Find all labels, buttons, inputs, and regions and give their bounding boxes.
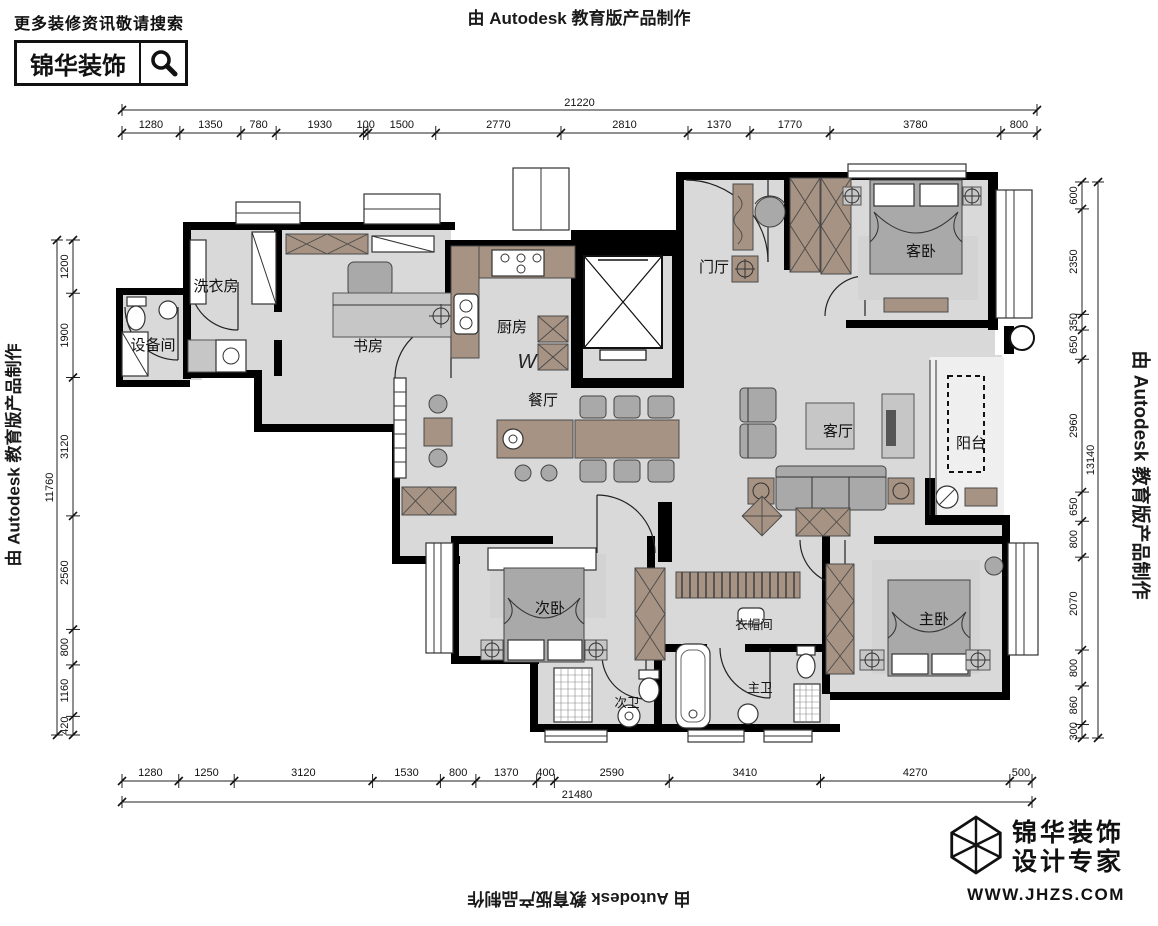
room-label-second-bath: 次卫 (614, 696, 639, 710)
svg-text:650: 650 (1068, 335, 1080, 353)
svg-text:3120: 3120 (59, 434, 71, 458)
room-label-balcony: 阳台 (956, 435, 986, 452)
room-label-study: 书房 (353, 338, 383, 355)
svg-text:2070: 2070 (1068, 591, 1080, 615)
svg-text:21220: 21220 (564, 97, 595, 109)
svg-text:350: 350 (1068, 313, 1080, 331)
svg-text:1250: 1250 (194, 767, 218, 779)
svg-text:1160: 1160 (59, 679, 71, 703)
room-label-kitchen: 厨房 (497, 319, 527, 336)
room-label-master-bedroom: 主卧 (919, 611, 949, 628)
svg-text:300: 300 (1068, 722, 1080, 740)
svg-text:1900: 1900 (59, 323, 71, 347)
svg-text:2560: 2560 (59, 560, 71, 584)
svg-text:1200: 1200 (59, 254, 71, 278)
svg-text:1350: 1350 (198, 119, 222, 131)
svg-text:2810: 2810 (612, 119, 636, 131)
svg-text:400: 400 (536, 767, 554, 779)
floor-plan-drawing: 洗衣房 设备间 书房 厨房 餐厅 门厅 客卧 客厅 阳台 次卧 衣帽间 主卧 次… (0, 0, 1158, 926)
svg-text:2590: 2590 (600, 767, 624, 779)
svg-text:800: 800 (449, 767, 467, 779)
room-label-dining: 餐厅 (528, 392, 558, 409)
svg-text:13140: 13140 (1085, 445, 1097, 476)
svg-text:3410: 3410 (733, 767, 757, 779)
svg-text:650: 650 (1068, 497, 1080, 515)
svg-text:11760: 11760 (44, 473, 56, 503)
svg-text:1530: 1530 (394, 767, 418, 779)
floor-plan-page: 由 Autodesk 教育版产品制作 由 Autodesk 教育版产品制作 由 … (0, 0, 1158, 926)
room-label-equipment: 设备间 (130, 337, 175, 354)
svg-text:500: 500 (1012, 767, 1030, 779)
svg-text:3780: 3780 (903, 119, 927, 131)
svg-text:800: 800 (1068, 659, 1080, 677)
svg-text:21480: 21480 (562, 789, 593, 801)
room-label-guest-bedroom: 客卧 (906, 243, 936, 260)
room-label-foyer: 门厅 (699, 259, 729, 276)
svg-text:2960: 2960 (1068, 413, 1080, 437)
room-label-cloakroom: 衣帽间 (735, 617, 773, 632)
svg-text:800: 800 (59, 638, 71, 656)
svg-text:780: 780 (249, 119, 267, 131)
svg-text:4270: 4270 (903, 767, 927, 779)
svg-text:1770: 1770 (778, 119, 802, 131)
svg-text:420: 420 (59, 717, 71, 735)
svg-text:1280: 1280 (138, 767, 162, 779)
svg-text:860: 860 (1068, 696, 1080, 714)
svg-text:1280: 1280 (139, 119, 163, 131)
svg-text:800: 800 (1068, 530, 1080, 548)
room-label-laundry: 洗衣房 (193, 278, 238, 295)
svg-text:2770: 2770 (486, 119, 510, 131)
svg-text:1500: 1500 (390, 119, 414, 131)
room-label-living: 客厅 (823, 423, 853, 440)
svg-text:100: 100 (356, 119, 374, 131)
svg-text:600: 600 (1068, 186, 1080, 204)
svg-text:1370: 1370 (707, 119, 731, 131)
svg-text:1370: 1370 (494, 767, 518, 779)
room-label-master-bath: 主卫 (747, 681, 772, 695)
washer-symbol: W (518, 351, 539, 373)
svg-text:1930: 1930 (308, 119, 332, 131)
room-label-second-bedroom: 次卧 (535, 600, 565, 617)
svg-text:800: 800 (1010, 119, 1028, 131)
svg-text:2350: 2350 (1068, 249, 1080, 273)
svg-text:3120: 3120 (291, 767, 315, 779)
elevator-shaft (584, 256, 662, 360)
